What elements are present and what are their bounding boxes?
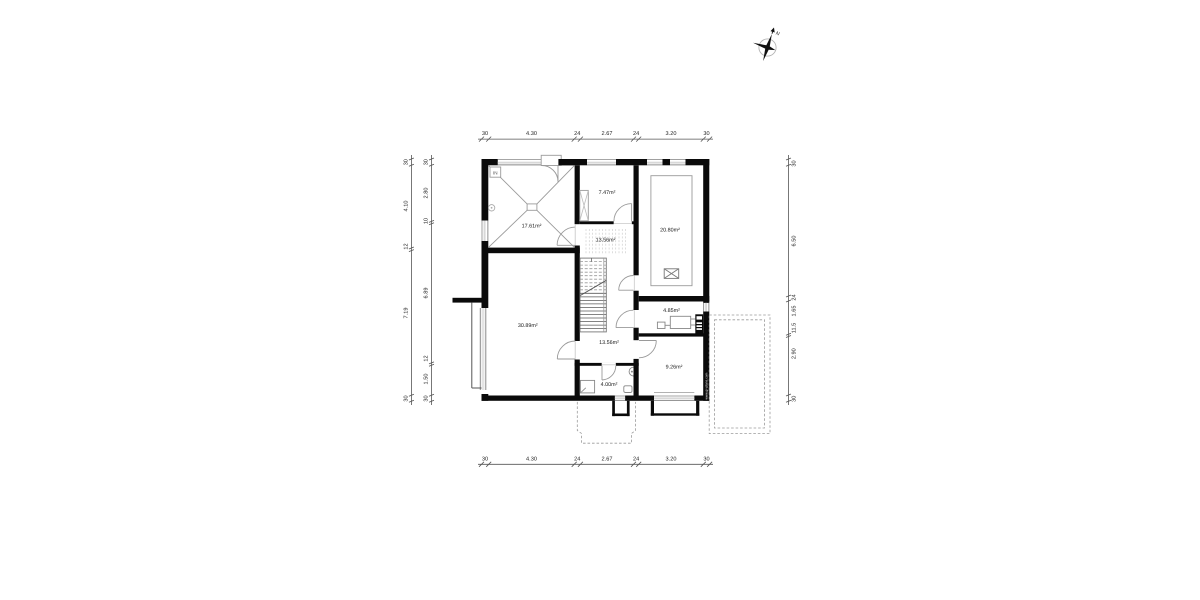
svg-text:7.19: 7.19 xyxy=(404,308,410,319)
svg-text:13.56m²: 13.56m² xyxy=(596,238,616,244)
svg-text:10: 10 xyxy=(424,218,430,224)
svg-text:24: 24 xyxy=(633,131,639,137)
svg-text:30: 30 xyxy=(703,457,709,463)
svg-text:30: 30 xyxy=(792,160,798,166)
svg-text:1.50: 1.50 xyxy=(424,374,430,385)
svg-text:7.47m²: 7.47m² xyxy=(599,190,616,196)
svg-text:24: 24 xyxy=(574,131,580,137)
svg-text:20.80m²: 20.80m² xyxy=(660,228,680,234)
svg-text:24: 24 xyxy=(633,457,639,463)
svg-text:3.20: 3.20 xyxy=(666,131,677,137)
svg-text:11.5: 11.5 xyxy=(792,323,798,333)
svg-text:12: 12 xyxy=(424,355,430,361)
svg-text:30: 30 xyxy=(424,159,430,165)
svg-text:30: 30 xyxy=(404,159,410,165)
svg-text:6.89: 6.89 xyxy=(424,288,430,299)
svg-text:30: 30 xyxy=(482,131,488,137)
svg-text:4.10: 4.10 xyxy=(404,201,410,212)
svg-text:4.00m²: 4.00m² xyxy=(601,382,618,388)
svg-text:17.61m²: 17.61m² xyxy=(522,223,542,229)
svg-text:1.65: 1.65 xyxy=(792,306,798,317)
svg-text:13.56m²: 13.56m² xyxy=(599,340,619,346)
svg-text:12: 12 xyxy=(404,243,410,249)
svg-text:6.50: 6.50 xyxy=(792,236,798,247)
svg-text:2.80: 2.80 xyxy=(424,188,430,199)
svg-text:4.85m²: 4.85m² xyxy=(663,308,680,314)
svg-text:30.89m²: 30.89m² xyxy=(518,323,538,329)
svg-text:4.30: 4.30 xyxy=(526,457,537,463)
svg-text:3.20: 3.20 xyxy=(666,457,677,463)
svg-text:30: 30 xyxy=(792,396,798,402)
svg-text:24: 24 xyxy=(574,457,580,463)
svg-text:30: 30 xyxy=(424,395,430,401)
svg-text:www.gr-plans.com: www.gr-plans.com xyxy=(704,372,708,399)
svg-text:IN: IN xyxy=(493,171,498,176)
svg-text:9.26m²: 9.26m² xyxy=(666,365,683,371)
svg-text:2.90: 2.90 xyxy=(792,348,798,359)
svg-text:4.30: 4.30 xyxy=(526,131,537,137)
svg-text:30: 30 xyxy=(404,395,410,401)
svg-text:2.67: 2.67 xyxy=(602,131,613,137)
svg-text:2.67: 2.67 xyxy=(602,457,613,463)
svg-text:30: 30 xyxy=(703,131,709,137)
svg-text:24: 24 xyxy=(792,294,798,300)
svg-text:30: 30 xyxy=(482,457,488,463)
